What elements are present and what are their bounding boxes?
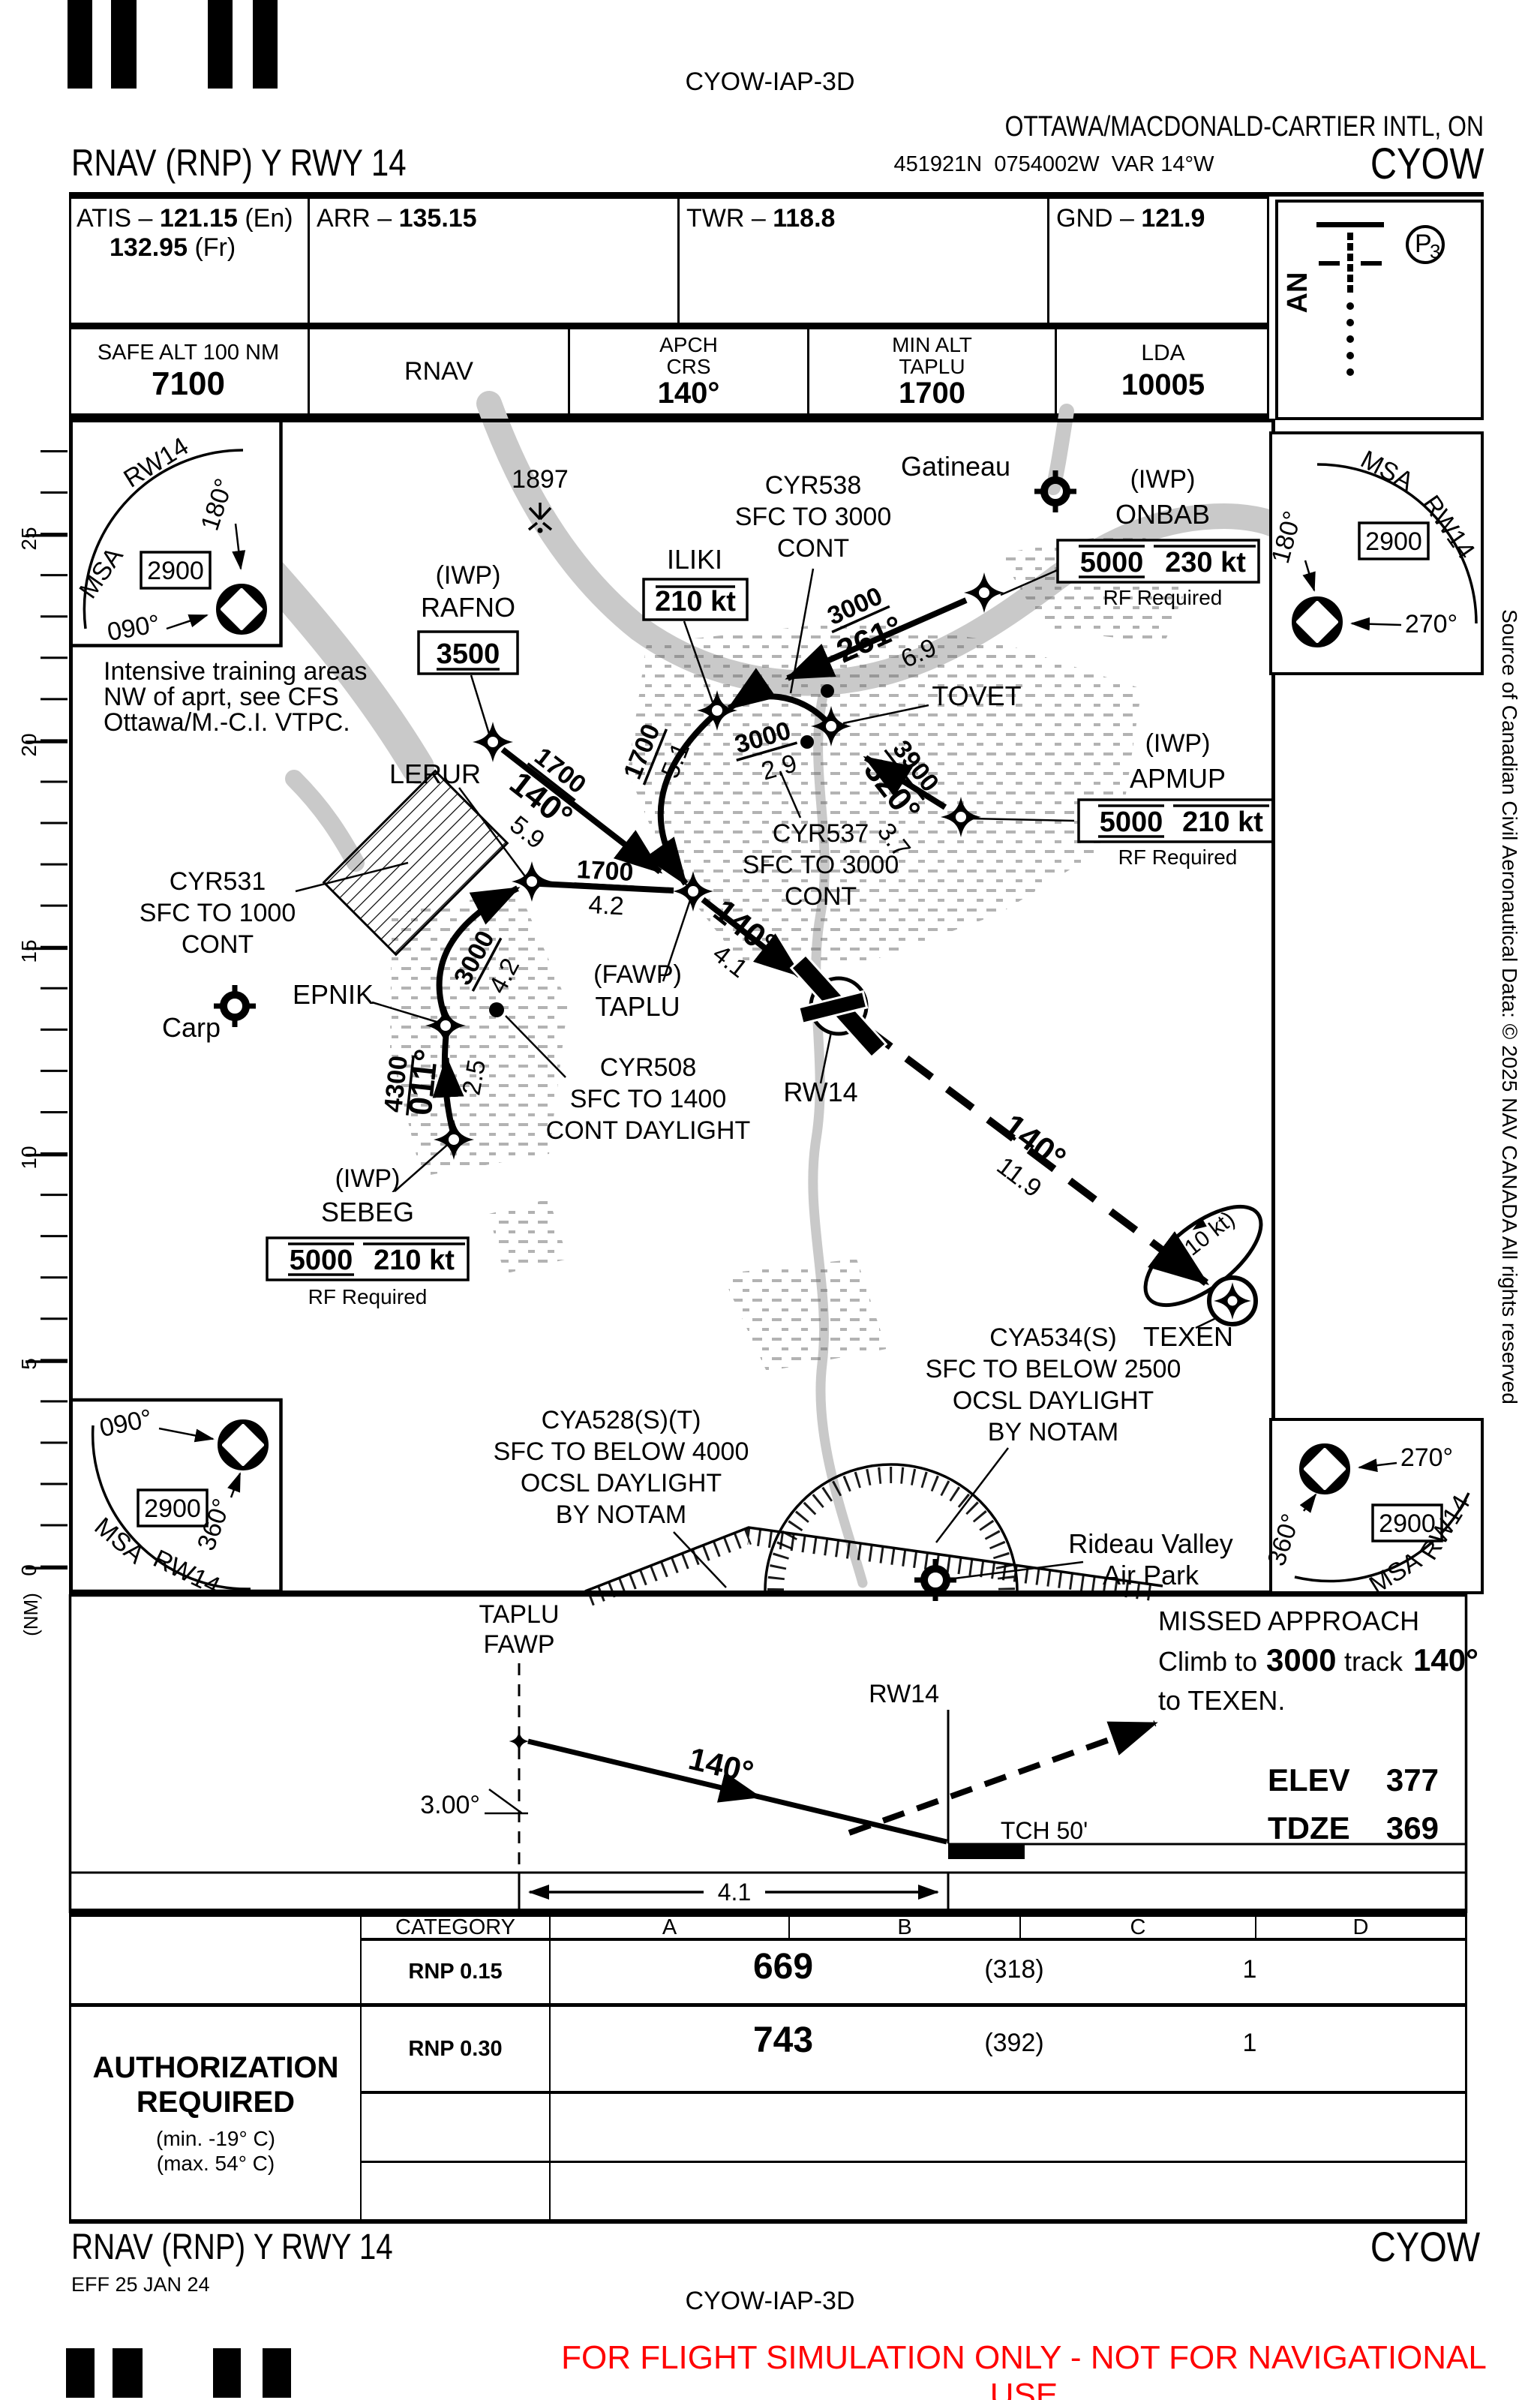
- rafno-iwp: (IWP): [436, 561, 501, 590]
- cyr508-3: CONT DAYLIGHT: [546, 1116, 751, 1145]
- p3-circle-icon: P 3: [1407, 227, 1443, 263]
- msa-alt: 2900: [144, 1494, 201, 1523]
- minima-row1-hat: (318): [969, 1955, 1059, 1984]
- tower-frequency: TWR – 118.8: [686, 204, 835, 233]
- runway-bar: [948, 1844, 1025, 1859]
- rafno-name: RAFNO: [421, 592, 515, 623]
- taplu-label: TAPLU: [595, 991, 680, 1022]
- auth-line-2: REQUIRED: [137, 2085, 295, 2119]
- an-label: AN: [1282, 272, 1313, 314]
- ground-frequency: GND – 121.9: [1056, 204, 1205, 233]
- ruler-25: 25: [17, 527, 41, 550]
- msa-180: 180°: [1266, 508, 1307, 566]
- authorization-required: AUTHORIZATION REQUIRED (min. -19° C) (ma…: [71, 2007, 360, 2219]
- lda-label: LDA: [1141, 340, 1184, 367]
- cya528-2: SFC TO BELOW 4000: [494, 1437, 749, 1466]
- apch-crs-value: 140°: [658, 377, 720, 409]
- note-line-3: Ottawa/M.-C.I. VTPC.: [104, 708, 350, 737]
- registration-bar: [263, 2348, 291, 2398]
- msa-360: 360°: [1262, 1510, 1306, 1569]
- cya534-3: OCSL DAYLIGHT: [953, 1386, 1154, 1415]
- procedure-title-text: RNAV (RNP) Y RWY 14: [71, 141, 407, 185]
- divider: [308, 197, 310, 326]
- texen-label: TEXEN: [1143, 1321, 1233, 1352]
- lda-value: 10005: [1121, 367, 1205, 403]
- registration-bar: [113, 2348, 143, 2398]
- iliki-constraint: ILIKI 210 kt: [644, 544, 747, 620]
- onbab-rf: RF Required: [1103, 586, 1223, 609]
- atis-frequency: ATIS – 121.15 (En) 132.95 (Fr): [77, 204, 293, 263]
- p3-sub: 3: [1430, 240, 1440, 263]
- atis-label: ATIS –: [77, 204, 152, 233]
- carp-label: Carp: [162, 1012, 221, 1043]
- min-altitude: MIN ALT TAPLU 1700: [809, 326, 1055, 416]
- rw14-airport-symbol: [791, 955, 886, 1057]
- footer-icao: CYOW: [1349, 2222, 1480, 2271]
- sebeg-spd: 210 kt: [374, 1245, 455, 1276]
- minima-header-d: D: [1256, 1917, 1465, 1938]
- leg-sebeg-crs: 011°: [402, 1047, 446, 1117]
- twr-value: 118.8: [773, 204, 835, 233]
- note-line-2: NW of aprt, see CFS: [104, 683, 339, 711]
- tovet-label: TOVET: [932, 680, 1021, 711]
- nav-type: RNAV: [310, 326, 568, 416]
- approach-lighting-icon: [1316, 222, 1384, 376]
- ruler-0: 0: [17, 1564, 41, 1576]
- descent-angle: 3.00°: [420, 1791, 480, 1819]
- profile-fix-type: FAWP: [483, 1630, 554, 1659]
- atis-note: (En): [245, 204, 293, 233]
- apmup-rf: RF Required: [1118, 846, 1238, 869]
- lda-length: LDA 10005: [1057, 326, 1269, 416]
- ruler-10: 10: [17, 1146, 41, 1169]
- approach-course: APCH CRS 140°: [570, 326, 807, 416]
- msa-alt: 2900: [1365, 527, 1422, 556]
- cyr538-2: SFC TO 3000: [735, 503, 892, 531]
- onbab-iwp: (IWP): [1130, 465, 1196, 494]
- rideau-label-2: Air Park: [1103, 1560, 1199, 1590]
- msa-inset-bottom-left: 090° 2900 360° MSA RW14: [71, 1400, 281, 1601]
- cya528-3: OCSL DAYLIGHT: [521, 1469, 722, 1497]
- descent-angle-icon: [485, 1789, 528, 1813]
- registration-bar: [213, 2348, 241, 2398]
- epnik-label: EPNIK: [293, 979, 374, 1010]
- cyr537-3: CONT: [785, 882, 857, 911]
- missed-l2a: Climb to: [1158, 1646, 1257, 1677]
- missed-l2b: 3000: [1266, 1642, 1336, 1678]
- sebeg-name: SEBEG: [321, 1197, 414, 1227]
- rafno-constraint: (IWP) RAFNO 3500: [419, 561, 518, 674]
- minima-row2-cat: RNP 0.30: [362, 2007, 549, 2091]
- cyr537-2: SFC TO 3000: [743, 851, 899, 879]
- twr-label: TWR –: [686, 204, 766, 233]
- onbab-spd: 230 kt: [1165, 547, 1246, 578]
- cyr531-3: CONT: [182, 930, 254, 959]
- msa-rose-icon: [218, 586, 265, 632]
- safe-alt-label: SAFE ALT 100 NM: [98, 341, 279, 365]
- minima-row2-da: 743: [738, 2020, 828, 2061]
- minima-row1-da: 669: [738, 1946, 828, 1987]
- divider: [1047, 197, 1049, 326]
- sebeg-constraint: (IWP) SEBEG 5000 210 kt RF Required: [267, 1164, 468, 1308]
- msa-alt: 2900: [147, 557, 204, 585]
- minima-header-b: B: [790, 1917, 1019, 1938]
- msa-rose-icon: [220, 1422, 266, 1468]
- profile-fawp-cross: [509, 1732, 530, 1752]
- leg-lerur-dist: 4.2: [588, 891, 625, 921]
- tdze-label: TDZE: [1268, 1810, 1350, 1846]
- cya534-4: BY NOTAM: [988, 1418, 1118, 1446]
- cya528-4: BY NOTAM: [556, 1500, 686, 1529]
- msa-270: 270°: [1400, 1443, 1453, 1472]
- profile-rw-label: RW14: [869, 1680, 939, 1708]
- atis-value: 121.15: [160, 204, 238, 233]
- iliki-name: ILIKI: [667, 544, 722, 575]
- msa-inset-top-left: 2900 180° 090° MSA RW14: [71, 421, 281, 647]
- msa-270: 270°: [1405, 610, 1457, 638]
- onbab-alt: 5000: [1080, 547, 1144, 578]
- minima-header-a: A: [551, 1917, 788, 1938]
- minima-row1-vis: 1: [1205, 1955, 1295, 1984]
- sebeg-rf: RF Required: [308, 1285, 428, 1308]
- cyr508-dot: [489, 1002, 504, 1017]
- onbab-name: ONBAB: [1115, 499, 1210, 530]
- rafno-alt: 3500: [437, 638, 500, 670]
- missed-l2d: 140°: [1413, 1642, 1478, 1678]
- msa-inset-bottom-right: 270° 2900 360° MSA RW14: [1269, 1418, 1484, 1594]
- tch-label: TCH 50': [1001, 1817, 1088, 1844]
- footer-title: RNAV (RNP) Y RWY 14: [71, 2227, 454, 2268]
- registration-bar: [66, 2348, 95, 2398]
- cyr508-2: SFC TO 1400: [570, 1085, 727, 1113]
- arr-label: ARR –: [317, 204, 392, 233]
- apmup-name: APMUP: [1130, 763, 1226, 794]
- coordinates-variation: 451921N 0754002W VAR 14°W: [878, 152, 1230, 177]
- cyr531-1: CYR531: [170, 867, 266, 896]
- footer-title-text: RNAV (RNP) Y RWY 14: [71, 2227, 393, 2268]
- apmup-spd: 210 kt: [1182, 807, 1263, 838]
- elev-value: 377: [1386, 1762, 1439, 1798]
- icao-code: CYOW: [1349, 139, 1484, 189]
- minalt-value: 1700: [899, 377, 965, 409]
- obstacle-dot: [821, 684, 834, 698]
- apmup-alt: 5000: [1100, 807, 1163, 838]
- tdze-value: 369: [1386, 1810, 1439, 1846]
- minima-header-category: CATEGORY: [362, 1917, 549, 1938]
- nm-ruler: 25 20 15 10 5 0 (NM): [26, 414, 69, 1645]
- apmup-iwp: (IWP): [1145, 729, 1211, 758]
- gnd-value: 121.9: [1141, 204, 1205, 233]
- missed-l3: to TEXEN.: [1158, 1685, 1285, 1716]
- gnd-label: GND –: [1056, 204, 1134, 233]
- cyr531-2: SFC TO 1000: [140, 899, 296, 927]
- cyr537-1: CYR537: [773, 819, 869, 848]
- missed-approach-title: MISSED APPROACH: [1158, 1606, 1419, 1636]
- sebeg-iwp: (IWP): [335, 1164, 401, 1193]
- apch-label2: CRS: [666, 356, 710, 377]
- profile-fix-name: TAPLU: [479, 1600, 559, 1629]
- minima-row1-cat: RNP 0.15: [362, 1941, 549, 2003]
- note-line-1: Intensive training areas: [104, 657, 368, 686]
- arrival-frequency: ARR – 135.15: [317, 204, 477, 233]
- minima-row2-hat: (392): [969, 2029, 1059, 2058]
- ruler-unit: (NM): [20, 1593, 42, 1636]
- minima-row2-vis: 1: [1205, 2029, 1295, 2058]
- cyr538-1: CYR538: [765, 471, 862, 500]
- safe-altitude: SAFE ALT 100 NM 7100: [69, 326, 308, 416]
- plan-view: 3000 261° 6.9 3000 2.9 3900 320° 3.7 170…: [69, 419, 1275, 1594]
- cya534-2: SFC TO BELOW 2500: [926, 1355, 1181, 1383]
- cya534-1: CYA534(S): [989, 1323, 1116, 1352]
- atis-note2: (Fr): [194, 233, 236, 262]
- minima-table: CATEGORY A B C D RNP 0.15 669 (318) 1 RN…: [69, 1913, 1467, 2224]
- taplu-fawp-label: (FAWP): [593, 960, 682, 989]
- gatineau-label: Gatineau: [901, 451, 1010, 482]
- ruler-20: 20: [17, 733, 41, 756]
- atis-value2: 132.95: [110, 233, 188, 262]
- msa-label: MSA: [1356, 445, 1418, 496]
- source-note: Source of Canadian Civil Aeronautical Da…: [1497, 422, 1521, 1592]
- ruler-5: 5: [17, 1358, 41, 1370]
- simulation-disclaimer: FOR FLIGHT SIMULATION ONLY - NOT FOR NAV…: [555, 2339, 1493, 2400]
- icao-code-text: CYOW: [1370, 139, 1484, 189]
- minalt-label1: MIN ALT: [892, 334, 972, 356]
- arr-value: 135.15: [399, 204, 477, 233]
- lighting-box: AN P 3: [1275, 200, 1484, 420]
- safe-alt-value: 7100: [152, 365, 225, 403]
- approach-chart-page: CYOW-IAP-3D OTTAWA/MACDONALD-CARTIER INT…: [0, 0, 1540, 2400]
- minima-header-c: C: [1021, 1917, 1255, 1938]
- auth-line-3: (min. -19° C): [156, 2127, 275, 2151]
- missed-l2c: track: [1344, 1646, 1403, 1677]
- chart-code-bottom: CYOW-IAP-3D: [0, 2287, 1540, 2316]
- chart-code-top: CYOW-IAP-3D: [0, 68, 1540, 97]
- minalt-label2: TAPLU: [899, 356, 965, 377]
- cya528-1: CYA528(S)(T): [542, 1406, 701, 1434]
- cyr538-3: CONT: [777, 534, 849, 563]
- procedure-title: RNAV (RNP) Y RWY 14: [71, 141, 470, 185]
- auth-line-4: (max. 54° C): [157, 2152, 275, 2176]
- auth-line-1: AUTHORIZATION: [92, 2050, 338, 2085]
- waypoint-texen: [1209, 1278, 1256, 1324]
- profile-distance: 4.1: [718, 1879, 751, 1906]
- ruler-15: 15: [17, 939, 41, 963]
- elev-label: ELEV: [1268, 1762, 1350, 1798]
- leg-lerur-alt: 1700: [576, 855, 635, 887]
- iliki-spd: 210 kt: [655, 586, 736, 617]
- profile-view: TAPLU FAWP 140° 3.00° RW14 TCH 50' MISSE…: [69, 1594, 1467, 1913]
- cyr508-1: CYR508: [600, 1053, 697, 1082]
- sebeg-alt: 5000: [290, 1245, 353, 1276]
- footer-icao-text: CYOW: [1370, 2222, 1480, 2271]
- msa-inset-top-right: 2900 180° 270° MSA RW14: [1269, 431, 1484, 675]
- leg-sebeg-dist: 2.5: [457, 1058, 491, 1098]
- obstacle-elev: 1897: [512, 465, 569, 494]
- rw14-label: RW14: [783, 1077, 857, 1107]
- rideau-label-1: Rideau Valley: [1068, 1528, 1232, 1559]
- apch-label1: APCH: [659, 334, 718, 356]
- obstacle-dot: [800, 735, 814, 749]
- lerur-label: LERUR: [389, 758, 481, 789]
- divider: [677, 197, 680, 326]
